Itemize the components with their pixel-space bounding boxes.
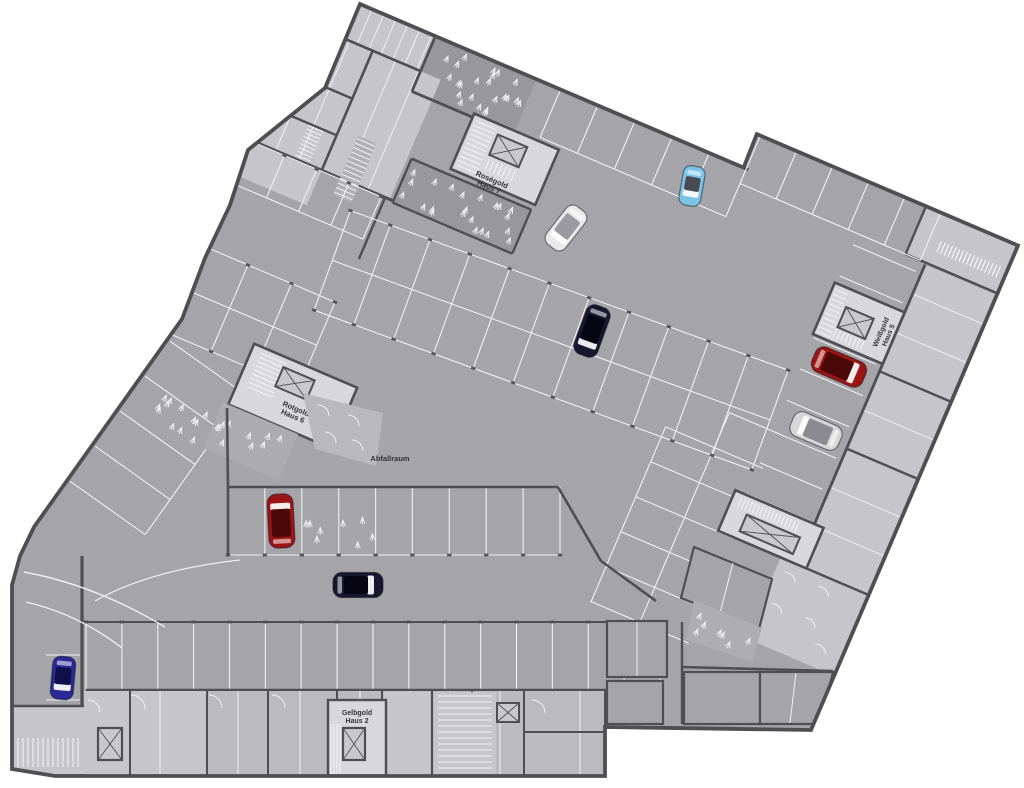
svg-text:GelbgoldHaus 2: GelbgoldHaus 2 <box>342 710 372 725</box>
svg-text:Abfallraum: Abfallraum <box>370 454 410 463</box>
